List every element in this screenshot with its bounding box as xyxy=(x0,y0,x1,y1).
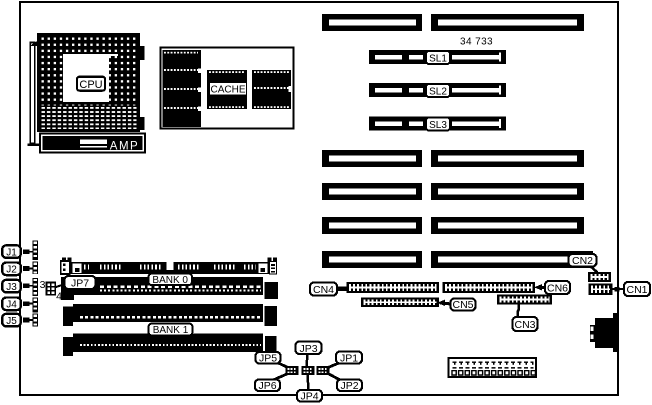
svg-text:J4: J4 xyxy=(6,300,17,311)
svg-text:JP1: JP1 xyxy=(340,352,358,364)
svg-text:SL2: SL2 xyxy=(429,86,447,97)
svg-text:BANK 0: BANK 0 xyxy=(152,275,188,286)
svg-text:J3: J3 xyxy=(6,282,17,293)
svg-text:3: 3 xyxy=(40,279,46,291)
svg-text:CN5: CN5 xyxy=(452,299,473,311)
svg-text:CN3: CN3 xyxy=(514,319,535,331)
svg-text:JP7: JP7 xyxy=(71,277,89,289)
svg-text:CN4: CN4 xyxy=(313,284,334,296)
svg-text:JP5: JP5 xyxy=(259,352,277,364)
svg-text:JP4: JP4 xyxy=(300,390,318,402)
svg-text:CPU: CPU xyxy=(79,79,102,91)
svg-text:4: 4 xyxy=(56,291,62,303)
svg-text:J1: J1 xyxy=(6,248,17,259)
svg-text:34 733: 34 733 xyxy=(460,37,493,48)
svg-text:J5: J5 xyxy=(6,316,17,327)
svg-text:SL3: SL3 xyxy=(429,120,447,131)
svg-text:J2: J2 xyxy=(6,265,17,276)
svg-text:CACHE: CACHE xyxy=(210,85,245,96)
svg-text:JP3: JP3 xyxy=(299,343,317,355)
svg-text:CN6: CN6 xyxy=(547,282,568,294)
svg-text:BANK 1: BANK 1 xyxy=(153,325,189,336)
svg-text:CN2: CN2 xyxy=(572,255,593,267)
svg-text:CN1: CN1 xyxy=(626,284,647,296)
svg-text:JP2: JP2 xyxy=(340,380,358,392)
svg-text:JP6: JP6 xyxy=(258,380,276,392)
svg-text:AMP: AMP xyxy=(110,141,139,153)
svg-text:SL1: SL1 xyxy=(429,53,447,64)
